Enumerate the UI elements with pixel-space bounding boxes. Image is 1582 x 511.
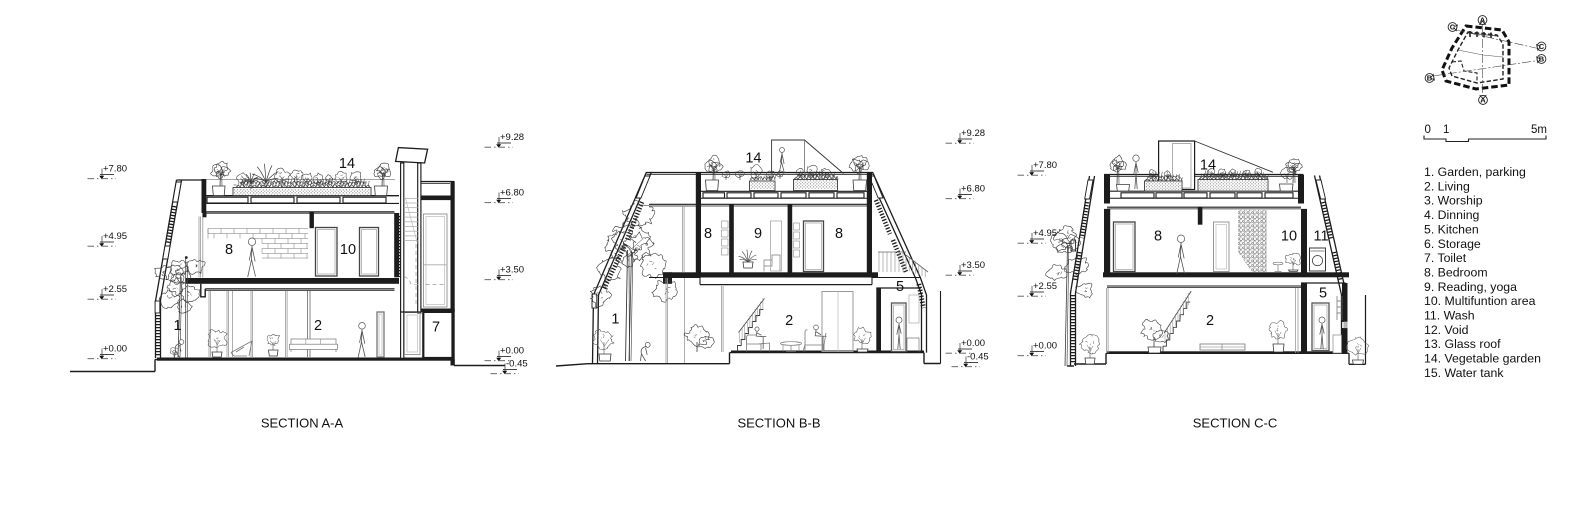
svg-text:+9.28: +9.28 [961,128,985,139]
svg-text:1. Garden, parking: 1. Garden, parking [1424,165,1526,179]
svg-text:1: 1 [1443,124,1449,136]
svg-text:8: 8 [704,226,712,242]
svg-text:+2.55: +2.55 [103,284,127,295]
svg-text:-0.45: -0.45 [506,359,528,370]
svg-text:2. Living: 2. Living [1424,179,1470,193]
svg-text:1: 1 [611,312,619,328]
svg-text:5: 5 [896,279,904,295]
svg-text:SECTION B-B: SECTION B-B [737,416,820,431]
svg-text:0: 0 [1425,124,1431,136]
svg-text:9. Reading, yoga: 9. Reading, yoga [1424,280,1517,294]
svg-text:7: 7 [432,320,440,336]
svg-text:2: 2 [1206,313,1214,329]
svg-text:3. Worship: 3. Worship [1424,194,1483,208]
svg-text:-0.45: -0.45 [967,352,989,363]
svg-text:9: 9 [754,226,762,242]
svg-text:C: C [1450,23,1456,32]
svg-text:13. Glass roof: 13. Glass roof [1424,337,1501,351]
svg-text:5m: 5m [1531,124,1547,136]
svg-text:+0.00: +0.00 [961,338,985,349]
svg-text:+9.28: +9.28 [500,132,524,143]
svg-text:14: 14 [1200,158,1216,174]
svg-text:+4.95: +4.95 [1033,228,1057,239]
svg-text:12. Void: 12. Void [1424,323,1469,337]
svg-text:11. Wash: 11. Wash [1424,309,1475,323]
svg-text:B: B [1427,74,1433,83]
svg-text:8. Bedroom: 8. Bedroom [1424,265,1488,279]
svg-text:5. Kitchen: 5. Kitchen [1424,222,1479,236]
svg-text:+0.00: +0.00 [1033,341,1057,352]
svg-text:+7.80: +7.80 [103,164,127,175]
svg-text:8: 8 [225,242,233,258]
svg-text:15. Water tank: 15. Water tank [1424,366,1504,380]
svg-text:10: 10 [1281,229,1297,245]
svg-text:5: 5 [1319,286,1327,302]
svg-text:+4.95: +4.95 [103,231,127,242]
svg-text:+7.80: +7.80 [1033,160,1057,171]
svg-text:11: 11 [1313,229,1328,245]
svg-text:SECTION C-C: SECTION C-C [1193,416,1278,431]
svg-text:+6.80: +6.80 [500,188,524,199]
svg-text:14. Vegetable garden: 14. Vegetable garden [1424,352,1541,366]
svg-text:10: 10 [340,242,356,258]
svg-text:+6.80: +6.80 [961,184,985,195]
svg-text:+3.50: +3.50 [961,260,985,271]
svg-text:8: 8 [835,226,843,242]
svg-text:10. Multifuntion area: 10. Multifuntion area [1424,294,1536,308]
svg-text:+0.00: +0.00 [103,344,127,355]
svg-text:1: 1 [174,318,182,334]
svg-text:SECTION A-A: SECTION A-A [261,416,344,431]
svg-text:8: 8 [1154,229,1162,245]
svg-text:6. Storage: 6. Storage [1424,237,1481,251]
svg-text:2: 2 [314,318,322,334]
svg-text:+3.50: +3.50 [500,265,524,276]
svg-text:14: 14 [745,151,761,167]
svg-text:+0.00: +0.00 [500,346,524,357]
svg-text:14: 14 [339,156,355,172]
svg-text:2: 2 [785,313,793,329]
svg-text:+2.55: +2.55 [1033,281,1057,292]
svg-text:4. Dinning: 4. Dinning [1424,208,1480,222]
svg-text:7. Toilet: 7. Toilet [1424,251,1467,265]
